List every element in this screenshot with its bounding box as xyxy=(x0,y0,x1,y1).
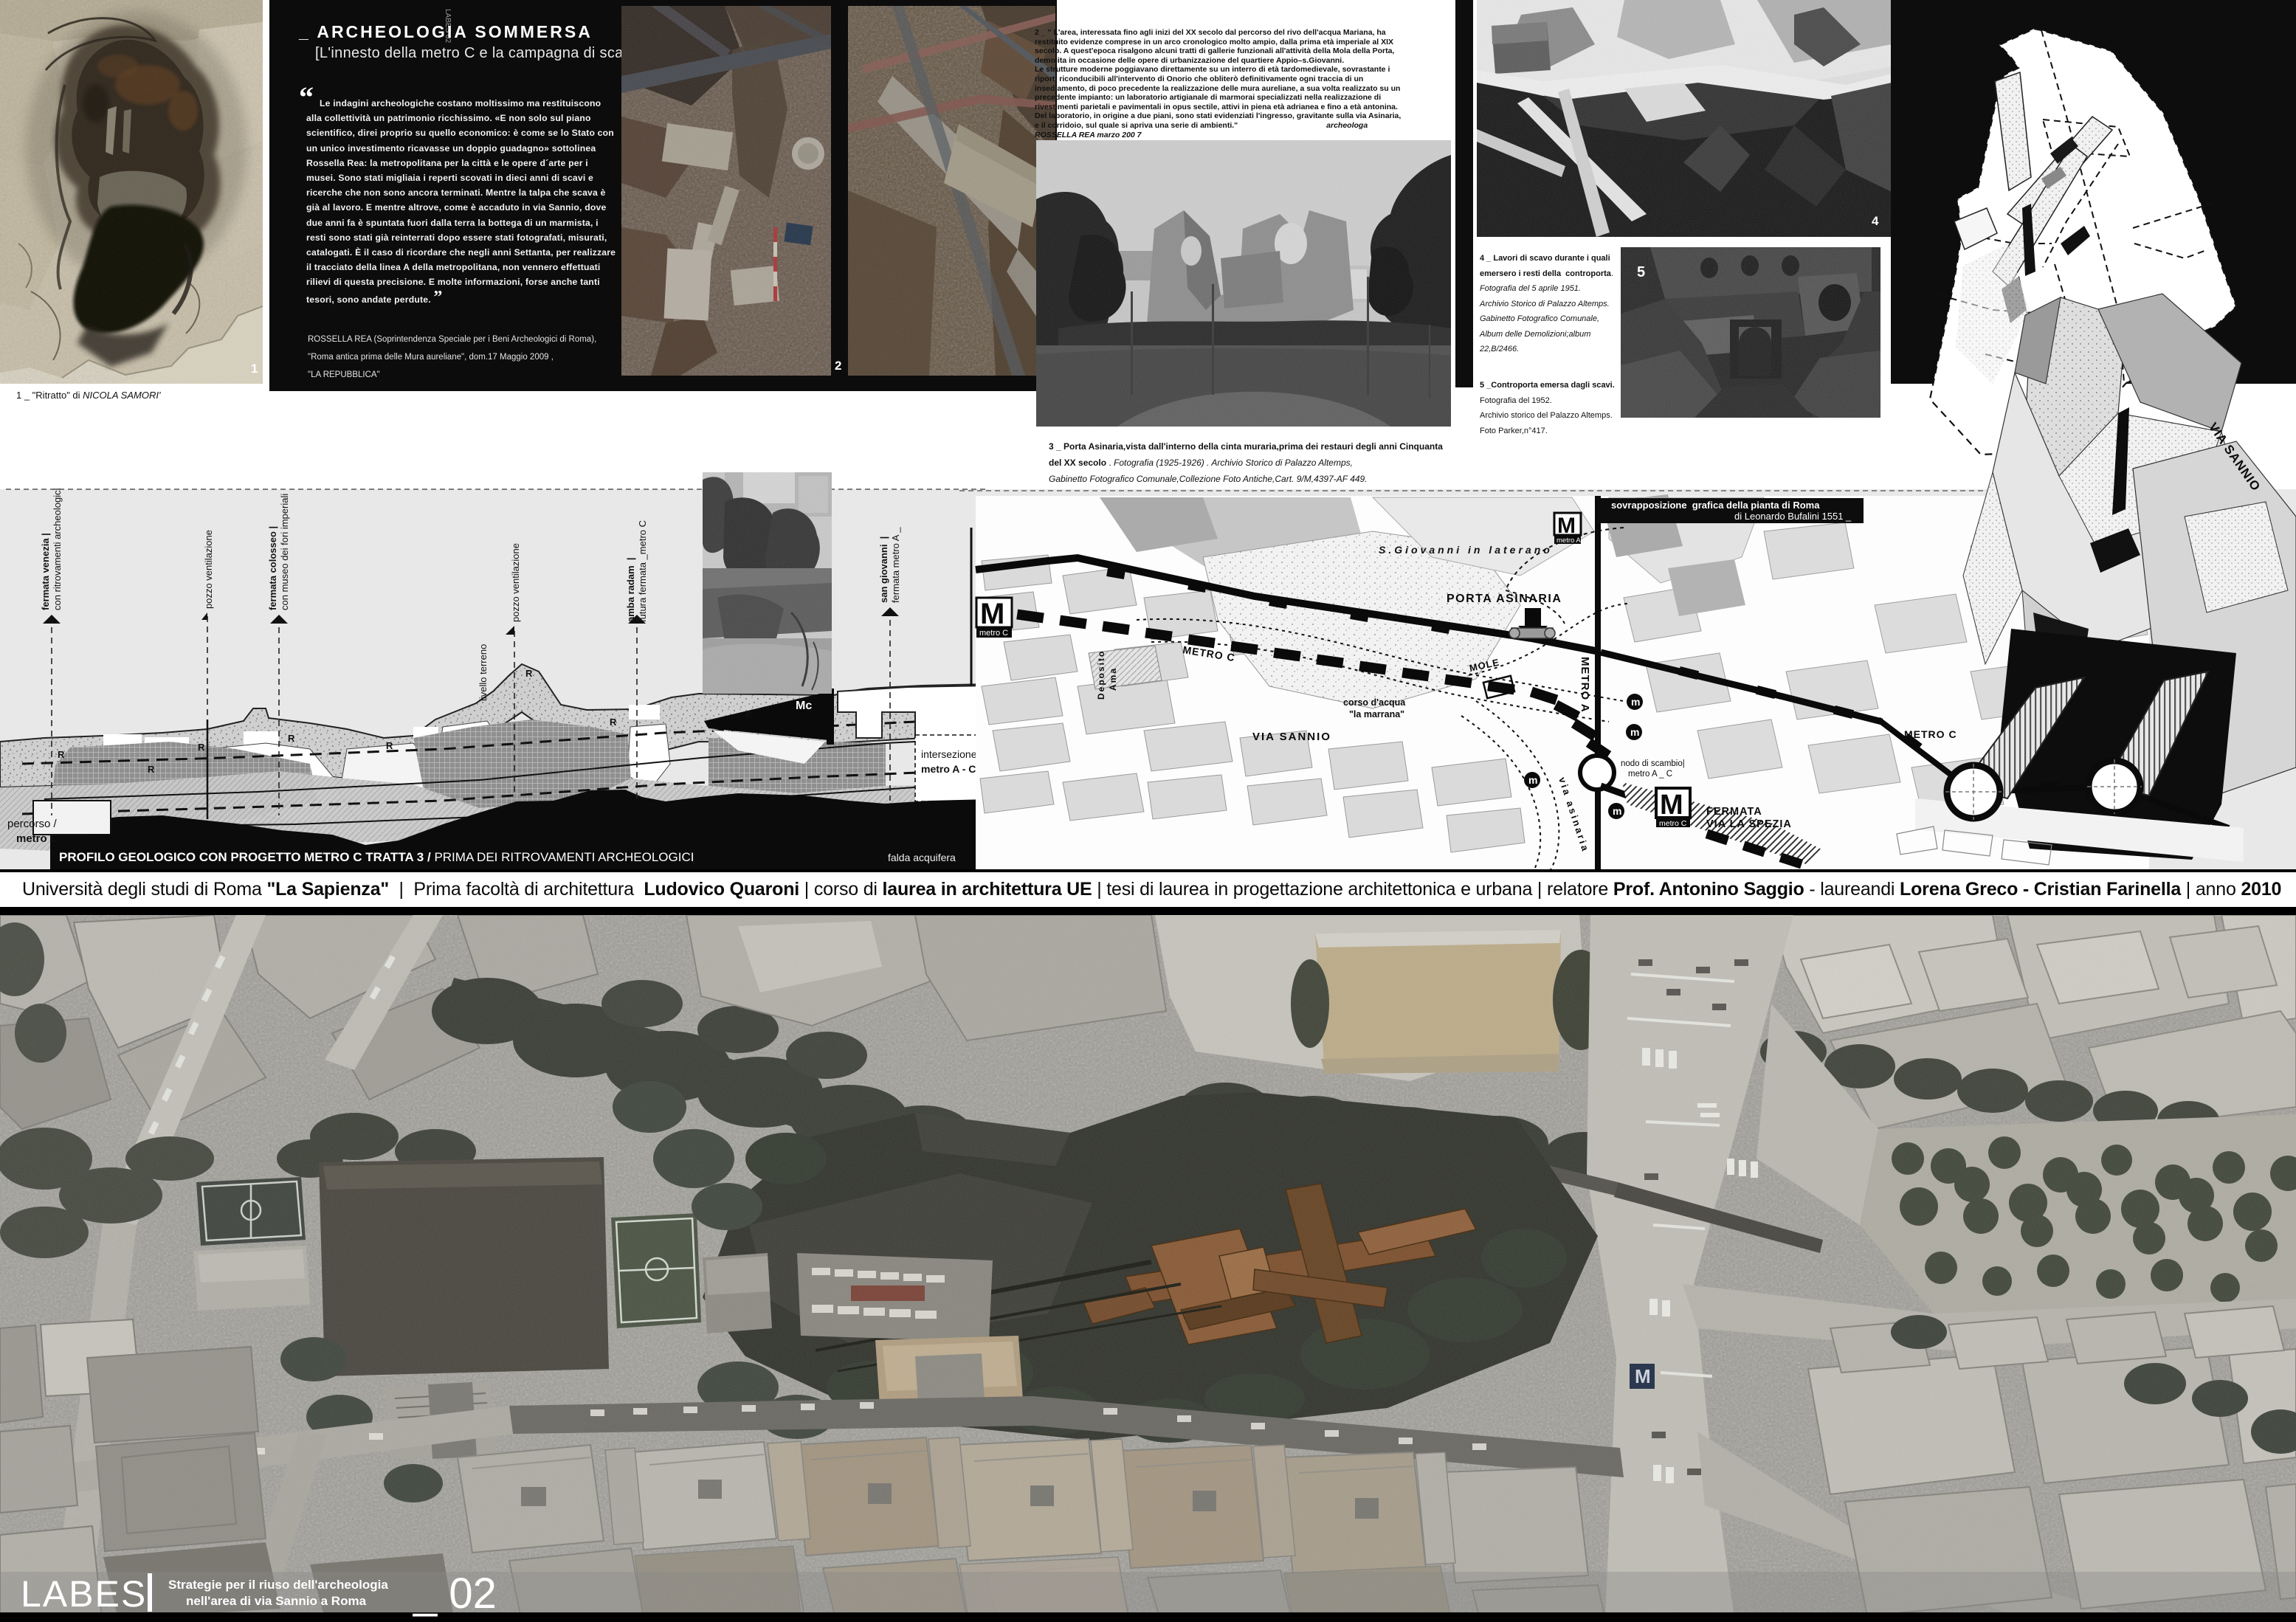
svg-text:M: M xyxy=(980,598,1004,630)
svg-text:VIA LA SPEZIA: VIA LA SPEZIA xyxy=(1706,818,1792,830)
svg-text:VIA SANNIO: VIA SANNIO xyxy=(1252,731,1331,743)
svg-text:con museo dei fori imperiali: con museo dei fori imperiali xyxy=(279,494,290,610)
svg-text:metro A _ C: metro A _ C xyxy=(1628,770,1672,779)
svg-text:fermata metro A _: fermata metro A _ xyxy=(890,527,901,603)
svg-text:Strategie per il riuso dell'ar: Strategie per il riuso dell'archeologia xyxy=(168,1578,388,1592)
svg-text:livello terreno: livello terreno xyxy=(478,644,489,701)
svg-text:1: 1 xyxy=(251,362,258,376)
svg-text:METRO A: METRO A xyxy=(1579,657,1591,713)
svg-text:M: M xyxy=(1660,790,1683,821)
svg-text:metro C: metro C xyxy=(16,832,58,845)
svg-text:R: R xyxy=(148,764,155,775)
svg-text:pozzo ventilazione: pozzo ventilazione xyxy=(203,530,214,609)
svg-text:Ama: Ama xyxy=(1108,667,1118,691)
svg-text:R: R xyxy=(58,749,65,760)
svg-text:fermata colosseo |: fermata colosseo | xyxy=(267,526,278,610)
svg-text:m: m xyxy=(1631,696,1640,708)
svg-text:R: R xyxy=(198,742,205,753)
svg-text:_ 02: _ 02 xyxy=(413,1570,497,1618)
svg-text:falda acquifera: falda acquifera xyxy=(888,852,956,863)
svg-text:Deposito: Deposito xyxy=(1096,650,1106,700)
svg-text:corso d'acqua: corso d'acqua xyxy=(1343,697,1406,708)
svg-text:di Leonardo Bufalini 1551 _: di Leonardo Bufalini 1551 _ xyxy=(1734,511,1852,522)
svg-text:futura fermata _metro C: futura fermata _metro C xyxy=(637,520,648,622)
svg-text:M: M xyxy=(1557,514,1576,538)
svg-text:R: R xyxy=(745,709,753,720)
svg-text:R: R xyxy=(288,733,295,744)
svg-text:METRO C: METRO C xyxy=(1904,728,1957,740)
svg-text:m: m xyxy=(1613,805,1621,817)
svg-text:metro A: metro A xyxy=(1556,536,1581,545)
svg-text:LABES: LABES xyxy=(21,1573,147,1615)
svg-text:m: m xyxy=(1630,726,1639,738)
svg-text:sovrapposizione grafica della: sovrapposizione grafica della pianta di … xyxy=(1611,500,1820,511)
svg-text:PROFILO GEOLOGICO CON PROGETTO: PROFILO GEOLOGICO CON PROGETTO METRO C T… xyxy=(59,850,694,864)
svg-text:R: R xyxy=(525,668,533,679)
svg-text:nodo di scambio|: nodo di scambio| xyxy=(1621,759,1685,768)
svg-text:5: 5 xyxy=(1637,264,1645,280)
svg-text:R: R xyxy=(610,717,617,728)
svg-text:Mc: Mc xyxy=(796,700,812,712)
svg-text:metro C: metro C xyxy=(979,629,1008,638)
svg-text:S.Giovanni in laterano: S.Giovanni in laterano xyxy=(1379,544,1553,556)
svg-text:nell'area di via Sannio a Roma: nell'area di via Sannio a Roma xyxy=(186,1594,367,1608)
svg-text:amba radam |: amba radam | xyxy=(625,558,636,622)
svg-text:pozzo ventilazione: pozzo ventilazione xyxy=(510,543,521,622)
svg-text:FERMATA: FERMATA xyxy=(1706,806,1762,818)
svg-text:"la marrana": "la marrana" xyxy=(1349,709,1404,719)
svg-text:percorso /: percorso / xyxy=(7,818,58,830)
svg-text:san giovanni |: san giovanni | xyxy=(878,536,889,603)
svg-text:metro C: metro C xyxy=(1659,819,1687,828)
svg-text:PORTA ASINARIA: PORTA ASINARIA xyxy=(1447,593,1562,605)
svg-text:fermata venezia |: fermata venezia | xyxy=(40,533,51,610)
svg-text:R: R xyxy=(386,740,393,751)
svg-text:con ritrovamenti archeologici: con ritrovamenti archeologici xyxy=(52,488,63,610)
svg-text:m: m xyxy=(1528,774,1537,786)
